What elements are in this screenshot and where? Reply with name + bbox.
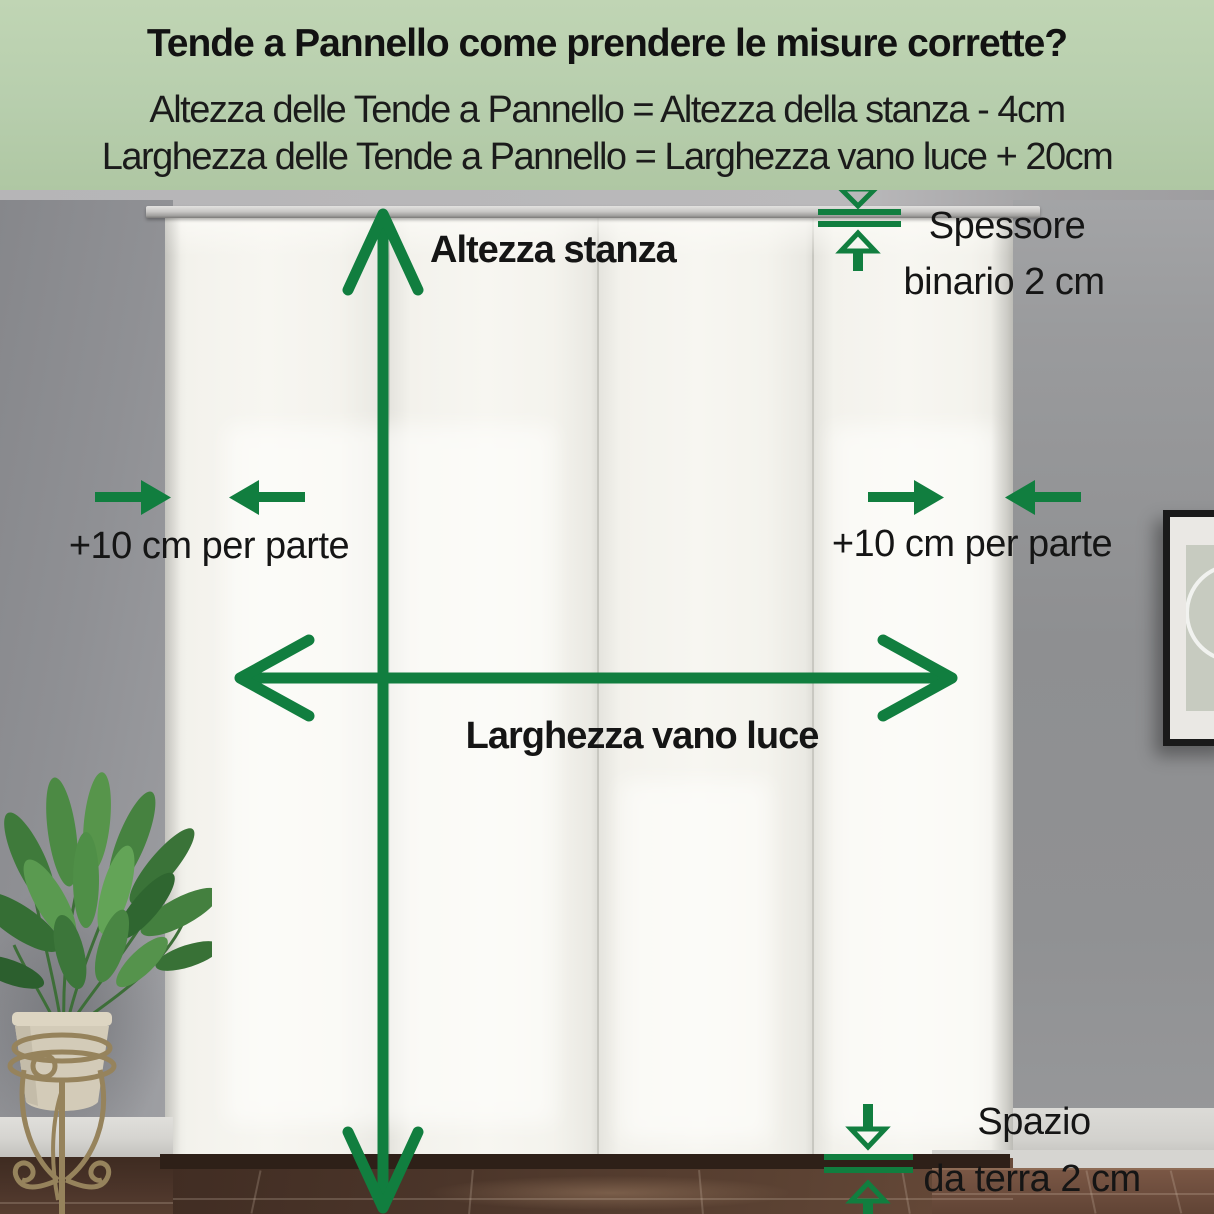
- infographic-canvas: Altezza stanza Larghezza vano luce +10 c…: [0, 0, 1214, 1214]
- left-margin-label: +10 cm per parte: [69, 526, 349, 567]
- curtain-rail: [146, 206, 1040, 218]
- plant: [0, 740, 212, 1214]
- curtain-floor-shadow: [160, 1154, 1010, 1169]
- picture-frame-mat: [1170, 517, 1214, 739]
- panel-curtain: [165, 210, 1013, 1162]
- room-height-label: Altezza stanza: [430, 230, 676, 271]
- curtain-right-shade: [991, 210, 1013, 1158]
- right-margin-label: +10 cm per parte: [832, 524, 1112, 565]
- window-light: [620, 780, 770, 1140]
- floor-grout-line: [173, 1198, 1013, 1200]
- rail-thickness-label-line2: binario 2 cm: [904, 262, 1105, 303]
- floor-gap-label-line1: Spazio: [977, 1102, 1090, 1143]
- page-title: Tende a Pannello come prendere le misure…: [0, 22, 1214, 66]
- picture-frame-art: [1186, 545, 1214, 711]
- plant-leaves: [0, 771, 212, 996]
- picture-frame-circle-motif: [1186, 563, 1214, 663]
- floor-reflection: [430, 1176, 790, 1210]
- height-formula: Altezza delle Tende a Pannello = Altezza…: [0, 89, 1214, 132]
- rail-thickness-label-line1: Spessore: [929, 206, 1086, 247]
- picture-frame: [1163, 510, 1214, 746]
- width-formula: Larghezza delle Tende a Pannello = Largh…: [0, 136, 1214, 179]
- header-band: Tende a Pannello come prendere le misure…: [0, 0, 1214, 190]
- opening-width-label: Larghezza vano luce: [466, 716, 819, 757]
- floor-gap-label-line2: da terra 2 cm: [923, 1159, 1140, 1200]
